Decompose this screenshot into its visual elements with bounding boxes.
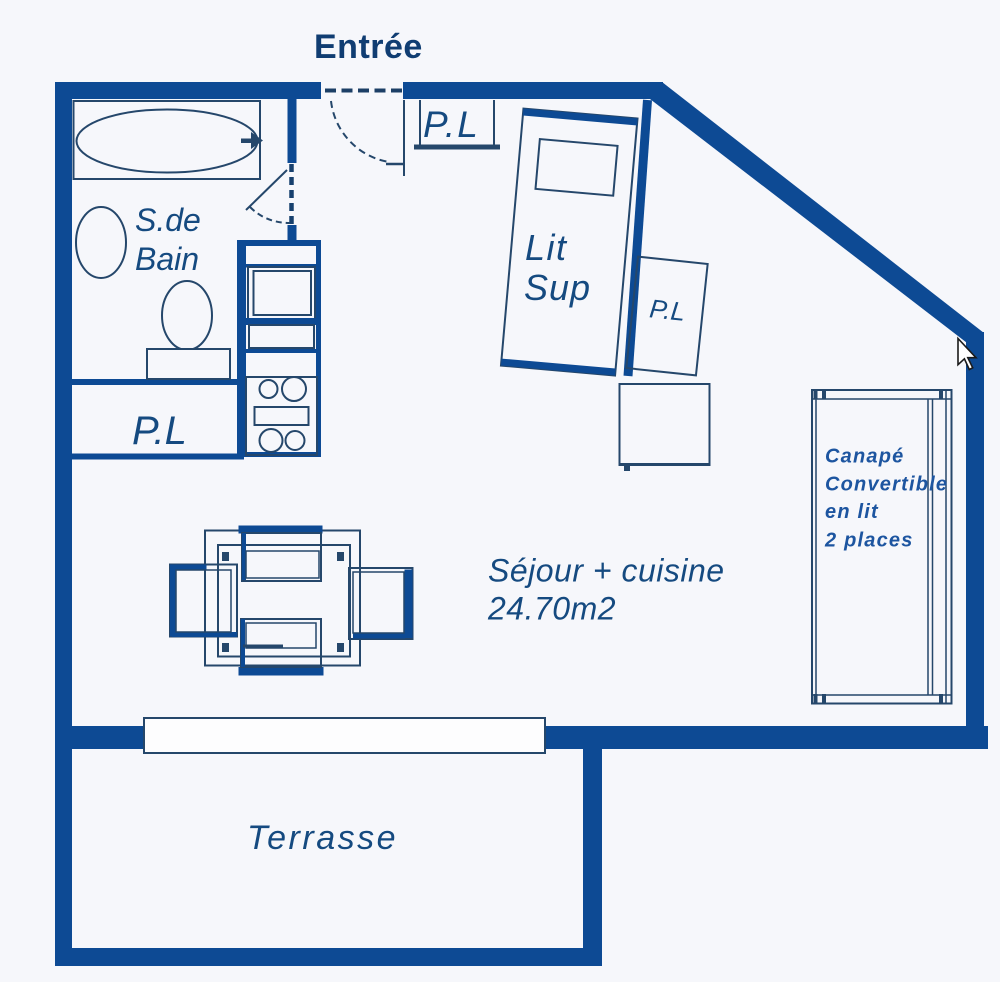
svg-text:2 places: 2 places <box>824 530 914 552</box>
svg-text:Sup: Sup <box>524 267 591 308</box>
svg-text:Lit: Lit <box>525 227 568 268</box>
svg-text:Bain: Bain <box>135 241 199 277</box>
svg-text:P.L: P.L <box>648 293 687 327</box>
svg-text:P.L: P.L <box>132 409 187 453</box>
svg-text:Terrasse: Terrasse <box>247 819 398 857</box>
svg-text:24.70m2: 24.70m2 <box>487 591 616 627</box>
svg-text:Entrée: Entrée <box>314 28 423 66</box>
svg-text:P.L: P.L <box>423 104 480 145</box>
svg-text:Convertible: Convertible <box>825 474 948 496</box>
svg-text:Canapé: Canapé <box>825 446 904 468</box>
svg-text:Séjour + cuisine: Séjour + cuisine <box>488 553 725 589</box>
svg-text:en lit: en lit <box>825 501 879 523</box>
svg-text:S.de: S.de <box>135 202 201 238</box>
